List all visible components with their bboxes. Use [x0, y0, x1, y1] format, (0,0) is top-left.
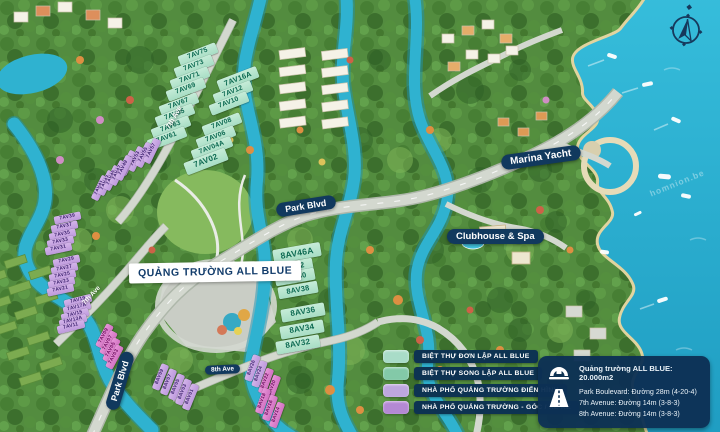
road-icon: [547, 387, 571, 409]
compass-icon: [664, 2, 708, 56]
plaza-icon: [547, 364, 571, 381]
legend-swatch: [383, 384, 409, 397]
info-plaza-row: Quảng trường ALL BLUE: 20.000m2: [547, 364, 701, 382]
street-label-8th-ave: 8th Ave: [205, 364, 240, 375]
legend-label: BIỆT THỰ SONG LẬP ALL BLUE: [414, 367, 542, 380]
info-plaza-text: Quảng trường ALL BLUE: 20.000m2: [579, 364, 701, 382]
info-road-lines: Park Boulevard: Đường 28m (4-20-4)7th Av…: [579, 387, 697, 420]
legend-swatch: [383, 367, 409, 380]
legend-swatch: [383, 401, 409, 414]
info-road-line: 7th Avenue: Đường 14m (3-8-3): [579, 398, 697, 409]
info-box: Quảng trường ALL BLUE: 20.000m2 Park Bou…: [538, 356, 710, 428]
legend-swatch: [383, 350, 409, 363]
masterplan-map: 7AV757AV737AV717AV697AV677AV657AV637AV61…: [0, 0, 720, 432]
info-road-line: Park Boulevard: Đường 28m (4-20-4): [579, 387, 697, 398]
legend-label: BIỆT THỰ ĐƠN LẬP ALL BLUE: [414, 350, 538, 363]
clubhouse-spa-label: Clubhouse & Spa: [447, 229, 544, 244]
plaza-label: QUẢNG TRƯỜNG ALL BLUE: [129, 260, 301, 283]
info-road-line: 8th Avenue: Đường 14m (3-8-3): [579, 409, 697, 420]
info-roads-row: Park Boulevard: Đường 28m (4-20-4)7th Av…: [547, 387, 701, 420]
